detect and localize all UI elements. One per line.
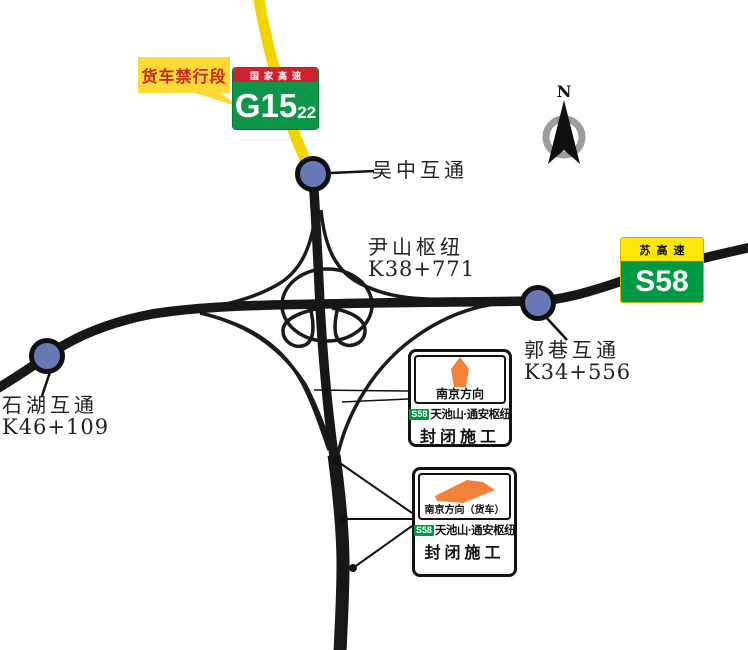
s58-badge: S58 xyxy=(409,409,429,420)
leader-wuzhong xyxy=(331,171,374,173)
g15-sign-body: G15 22 xyxy=(233,82,318,129)
label-shihu-name: 石湖互通 xyxy=(2,394,109,416)
s58-sign-top-banner: 苏高速 xyxy=(621,238,703,261)
route-junction-row: S58 天池山·通安枢纽 xyxy=(409,406,510,422)
closure-point-3 xyxy=(349,564,357,572)
compass-north-label: N xyxy=(557,82,572,101)
map-canvas: N xyxy=(0,0,748,650)
label-guoxiang: 郭巷互通 K34+556 xyxy=(524,339,631,383)
leader-notice2-c xyxy=(353,526,412,568)
label-yinshan-chainage: K38+771 xyxy=(368,258,475,280)
closure-status-label: 封闭施工 xyxy=(424,539,504,563)
direction-panel: 南京方向（货车） xyxy=(418,473,511,520)
traffic-closure-map: N 国家高速 G15 22 货车禁行段 苏高速 S58 吴中互通 尹山枢纽 K3… xyxy=(0,0,748,650)
s58-sign: 苏高速 S58 xyxy=(621,238,703,302)
loop-ramp-right xyxy=(332,307,365,345)
leader-notice1-a xyxy=(314,390,408,391)
label-yinshan-name: 尹山枢纽 xyxy=(368,236,475,258)
label-shihu-chainage: K46+109 xyxy=(2,416,109,438)
node-guoxiang xyxy=(523,288,554,319)
s58-badge: S58 xyxy=(414,525,434,536)
g15-vertical-road-south xyxy=(334,455,343,650)
label-guoxiang-chainage: K34+556 xyxy=(524,361,631,383)
g15-sign: 国家高速 G15 22 xyxy=(233,68,318,129)
direction-panel: 南京方向 xyxy=(414,355,506,404)
leader-guoxiang xyxy=(545,316,567,340)
closure-notice-truck: 南京方向（货车） S58 天池山·通安枢纽 封闭施工 xyxy=(412,467,517,577)
label-shihu: 石湖互通 K46+109 xyxy=(2,394,109,438)
junction-label: 天池山·通安枢纽 xyxy=(435,522,515,538)
g15-route-suffix: 22 xyxy=(297,104,316,121)
closure-status-label: 封闭施工 xyxy=(420,423,500,447)
direction-label: 南京方向 xyxy=(436,387,484,401)
closure-notice-car: 南京方向 S58 天池山·通安枢纽 封闭施工 xyxy=(408,349,512,447)
label-guoxiang-name: 郭巷互通 xyxy=(524,339,631,361)
node-wuzhong xyxy=(298,159,329,190)
right-arrow-icon xyxy=(433,477,497,505)
interchange-nodes xyxy=(32,159,554,372)
node-shihu xyxy=(32,341,63,372)
leader-notice1-b xyxy=(342,399,408,402)
s58-route-code: S58 xyxy=(621,261,703,302)
up-arrow-icon xyxy=(449,357,471,387)
ramp-upper-left xyxy=(194,210,316,309)
compass-north-icon: N xyxy=(546,82,582,164)
junction-label: 天池山·通安枢纽 xyxy=(430,406,510,422)
closure-point-2 xyxy=(340,515,348,523)
g15-sign-top-banner: 国家高速 xyxy=(233,68,318,82)
label-wuzhong: 吴中互通 xyxy=(372,159,468,181)
leader-notice2-a xyxy=(337,461,412,513)
direction-label: 南京方向（货车） xyxy=(425,505,505,517)
label-yinshan: 尹山枢纽 K38+771 xyxy=(368,236,475,280)
route-junction-row: S58 天池山·通安枢纽 xyxy=(414,522,515,538)
closure-point-1 xyxy=(333,457,341,465)
truck-ban-callout: 货车禁行段 xyxy=(138,57,230,93)
g15-route-code: G15 xyxy=(235,89,297,122)
